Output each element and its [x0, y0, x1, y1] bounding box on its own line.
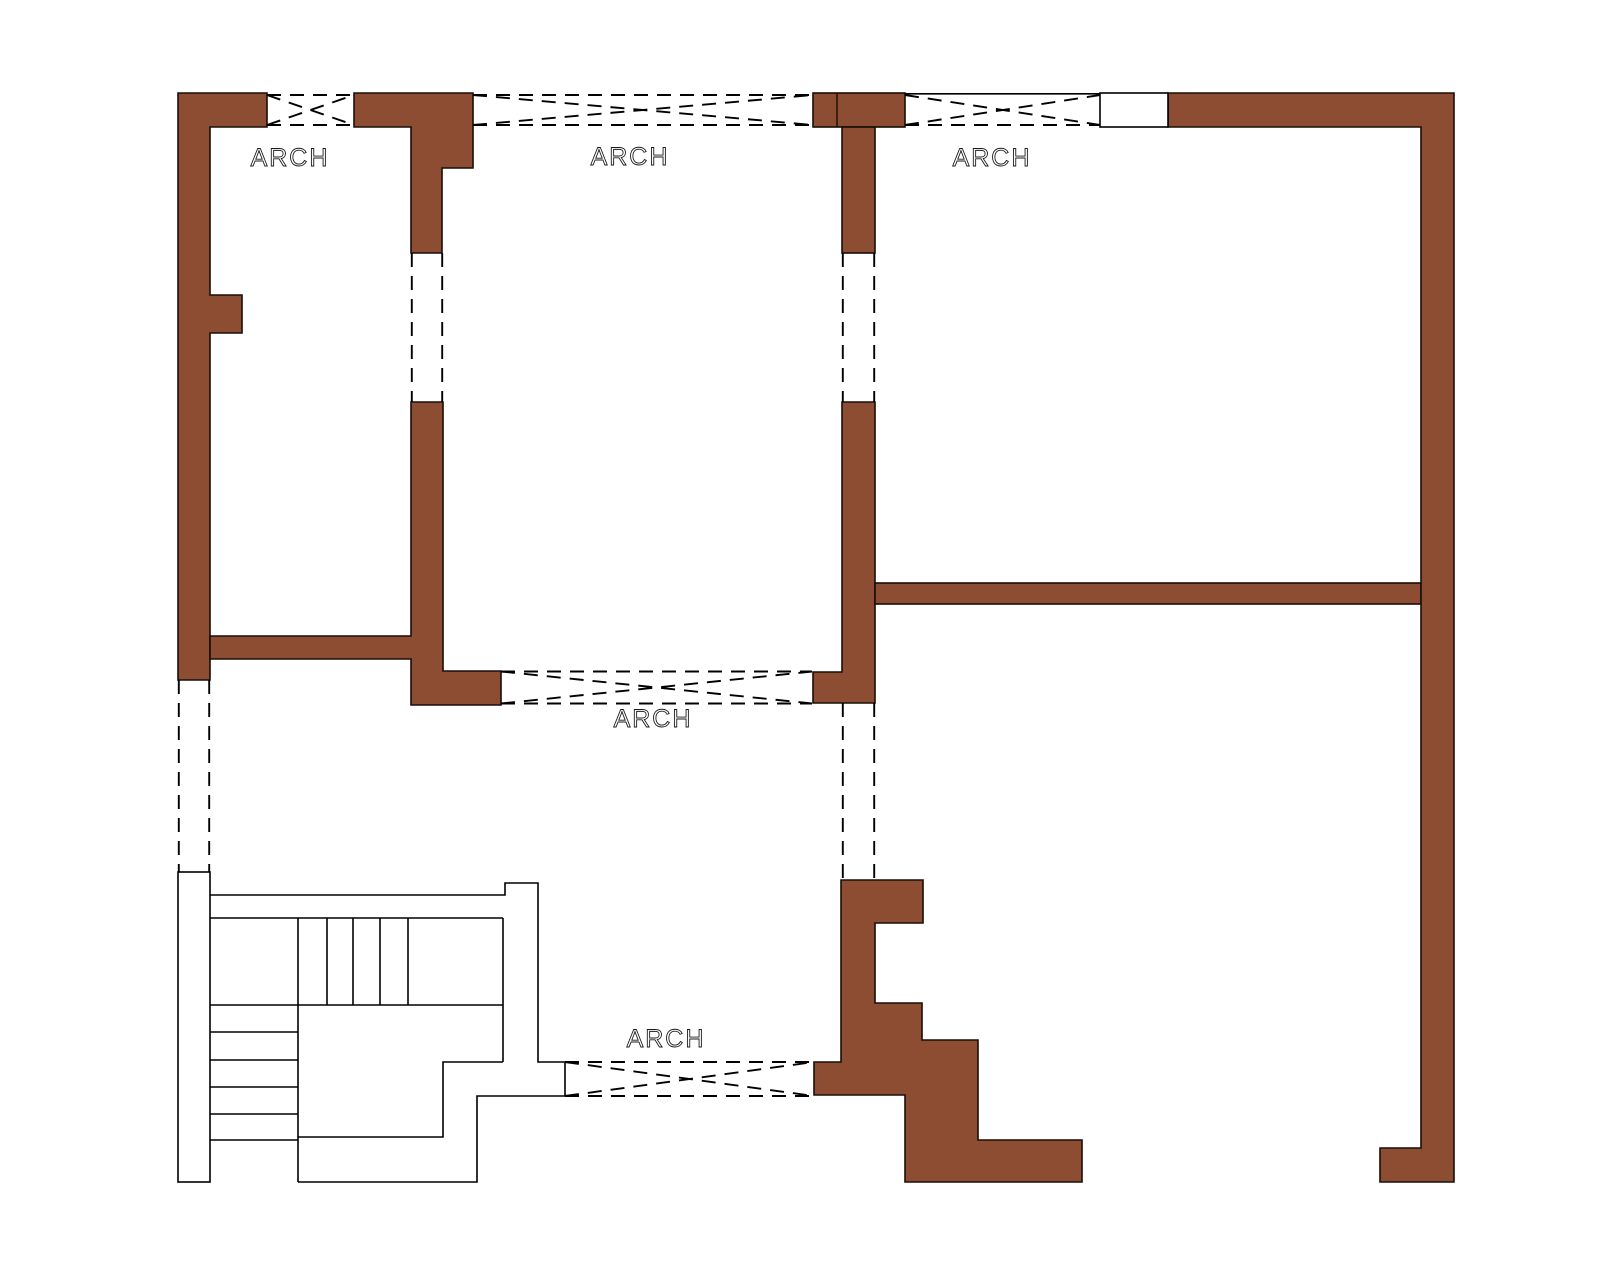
wall-stepped-stack [814, 880, 1082, 1182]
masonry-walls [178, 93, 1454, 1182]
wall-right-room-bottom [875, 583, 1421, 604]
wall-pillar-top-middle-right [813, 93, 905, 127]
arch-opening-middle [501, 672, 812, 704]
arch-label-bottom: ARCH [627, 1025, 706, 1053]
floor-plan-drawing: ARCH ARCH ARCH ARCH ARCH [0, 0, 1600, 1280]
wall-left-exterior [178, 93, 267, 680]
wall-left-room-bottom [210, 402, 501, 705]
arch-label-top-right: ARCH [953, 144, 1032, 172]
arch-label-top-left: ARCH [251, 144, 330, 172]
stair-wall-outline [178, 872, 210, 1182]
wall-pillar-top-left-middle [354, 93, 473, 253]
floor-plan-canvas: ARCH ARCH ARCH ARCH ARCH [0, 0, 1600, 1280]
stair-inner-steps [298, 1062, 503, 1137]
wall-opening-plain [1100, 93, 1168, 127]
arch-opening-top-middle [473, 95, 813, 125]
wall-right-exterior [1168, 93, 1454, 1182]
staircase [178, 872, 565, 1182]
dashed-wall-openings [179, 253, 874, 880]
wall-middle-right-upper [842, 127, 875, 253]
arch-label-top-middle: ARCH [591, 143, 670, 171]
arch-opening-bottom [565, 1062, 814, 1096]
wall-middle-right-lower [813, 402, 875, 703]
arch-opening-top-right [905, 94, 1100, 125]
arch-opening-top-left [267, 95, 354, 125]
arch-label-middle: ARCH [614, 705, 693, 733]
